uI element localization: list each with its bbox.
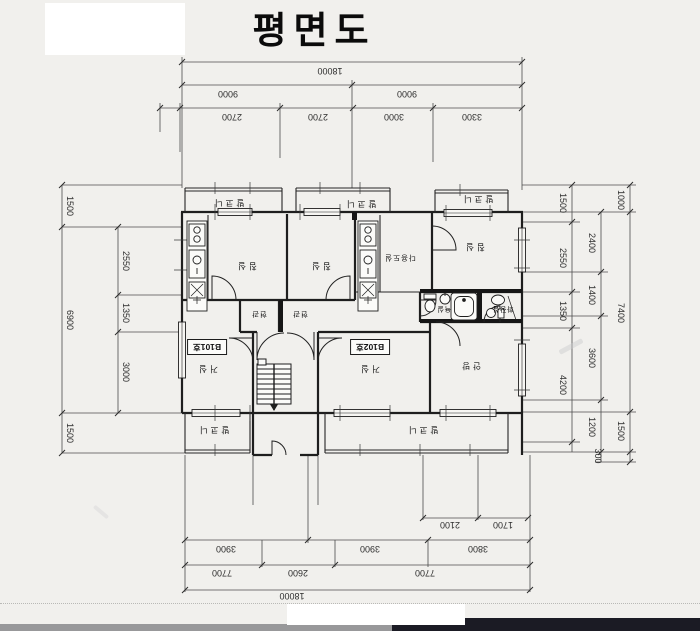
door-entry-1 [257,332,284,360]
dim-left-1500-bottom: 1500 [65,423,75,443]
room-label-toilet: 화장실 [493,304,514,314]
room-label-living-2: 거실 [358,363,380,375]
door-bedroom-c [432,226,456,250]
dim-left-1350: 1350 [121,303,131,323]
drawing-title: 평면도 [252,0,375,54]
scan-edge-strip-left [0,624,392,631]
toilet-icon [425,300,435,312]
dim-top-total: 18000 [317,66,342,76]
stove-icon [189,224,205,246]
dim-right-2400: 2400 [587,233,597,253]
kitchen-unit1 [187,221,207,311]
dim-right-1200: 1200 [587,417,597,437]
door-master [436,322,460,346]
toilet-tank-icon [424,294,436,299]
room-label-bedroom-c: 침실 [463,241,485,253]
dim-left-3000: 3000 [121,362,131,382]
dim-right-1400: 1400 [587,285,597,305]
staircase [257,359,291,410]
dimension-lines [62,57,636,592]
dim-right-1350: 1350 [558,301,568,321]
dim-bottom-2100: 2100 [440,520,460,530]
dim-right-1000: 1000 [616,190,626,210]
dim-bottom-1700: 1700 [493,520,513,530]
dim-bottom-7700-left: 7700 [212,568,232,578]
room-label-utility: 다용도실 [384,253,416,264]
floor-plan-drawing [0,0,700,631]
scanned-floor-plan-page: { "title": "평면도", "dims": { "top": { "to… [0,0,700,631]
room-label-bedroom-a: 침실 [235,260,257,272]
door-living-2 [318,338,342,362]
door-bedroom-a [212,276,236,300]
door-entry-2 [287,332,314,360]
dim-top-9000-left: 9000 [218,89,238,99]
room-label-balcony-top-left: 발코니 [212,197,244,209]
dim-left-2550: 2550 [121,251,131,271]
stove-icon [360,224,376,246]
room-label-entry-2: 현관 [292,309,308,320]
room-label-living-1: 거실 [196,363,218,375]
unit-number-b102: B102호 [350,339,390,355]
dim-top-2700a: 2700 [222,112,242,122]
room-label-bedroom-b: 침실 [309,260,331,272]
room-label-balcony-bottom-left: 발코니 [197,424,229,436]
dim-bottom-3900b: 3900 [360,544,380,554]
door-living-1 [229,338,253,362]
dimension-ticks [59,59,633,593]
room-label-balcony-top-mid: 발코니 [344,198,376,210]
dim-top-3300: 3300 [462,112,482,122]
dim-bottom-2600: 2600 [288,568,308,578]
room-label-master-bedroom: 안방 [459,360,481,372]
room-label-balcony-top-right: 발코니 [461,193,493,205]
dim-bottom-total: 18000 [279,591,304,601]
dim-bottom-7700-right: 7700 [415,568,435,578]
dim-right-300: 300 [593,448,603,463]
dim-right-1500-bottom: 1500 [616,421,626,441]
dim-right-4200: 4200 [558,375,568,395]
dim-right-3600: 3600 [587,348,597,368]
kitchen-unit2 [358,221,378,311]
dim-bottom-3900a: 3900 [216,544,236,554]
dim-top-2700b: 2700 [308,112,328,122]
dim-top-9000-right: 9000 [397,89,417,99]
scan-white-patch [287,604,465,625]
dim-right-2550: 2550 [558,248,568,268]
room-label-entry-1: 현관 [251,309,267,320]
dim-bottom-3800: 3800 [468,544,488,554]
stair-up-marker [258,359,266,365]
dim-top-3000: 3000 [384,112,404,122]
dim-left-1500-top: 1500 [65,196,75,216]
dim-left-6900: 6900 [65,310,75,330]
dim-right-1500: 1500 [558,193,568,213]
stair-direction-arrow [271,405,277,410]
room-label-bath: 욕실 [437,304,451,314]
room-label-balcony-bottom-right: 발코니 [406,424,438,436]
door-stairhall [272,441,286,455]
door-bedroom-b [326,276,350,300]
scan-paper: 평면도 18000 9000 9000 2700 2700 3000 3300 … [0,0,700,631]
dim-right-7400: 7400 [616,303,626,323]
blank-cover-box [45,3,185,55]
unit-number-b101: B101호 [187,339,227,355]
